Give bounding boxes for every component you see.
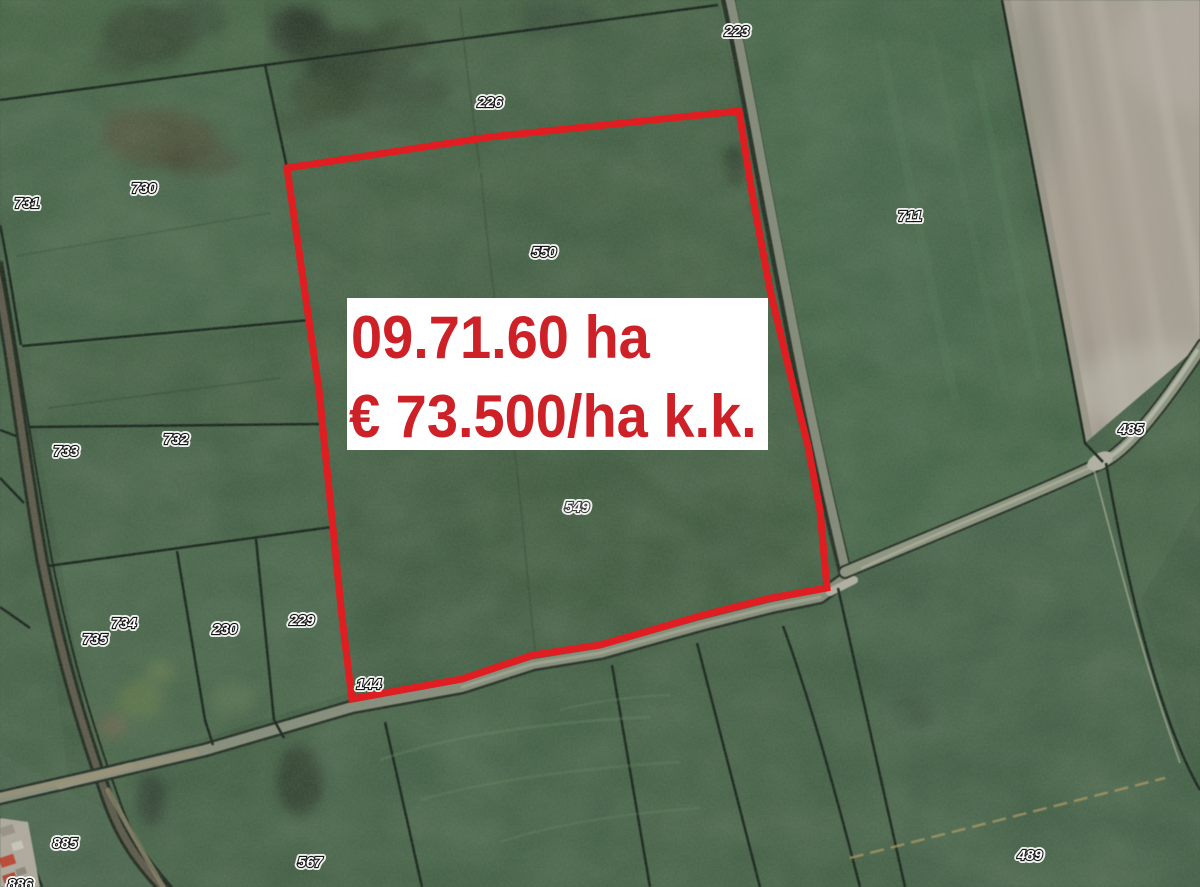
svg-text:885: 885 [52, 835, 78, 852]
svg-text:€ 73.500/ha k.k.: € 73.500/ha k.k. [349, 383, 757, 450]
svg-text:735: 735 [82, 631, 108, 648]
svg-text:485: 485 [1117, 421, 1144, 438]
svg-text:550: 550 [531, 244, 557, 261]
svg-text:734: 734 [111, 615, 137, 632]
svg-text:711: 711 [898, 208, 922, 225]
svg-text:223: 223 [723, 23, 750, 40]
svg-text:144: 144 [356, 676, 382, 693]
svg-text:226: 226 [476, 94, 503, 111]
svg-text:229: 229 [288, 612, 315, 629]
svg-text:567: 567 [297, 854, 323, 871]
svg-text:549: 549 [564, 499, 590, 516]
svg-text:489: 489 [1016, 847, 1043, 864]
svg-text:731: 731 [14, 195, 39, 212]
svg-text:730: 730 [131, 180, 157, 197]
svg-text:732: 732 [163, 431, 189, 448]
svg-text:09.71.60 ha: 09.71.60 ha [351, 304, 650, 371]
svg-text:886: 886 [7, 876, 33, 887]
svg-text:230: 230 [211, 621, 238, 638]
svg-text:733: 733 [53, 443, 79, 460]
